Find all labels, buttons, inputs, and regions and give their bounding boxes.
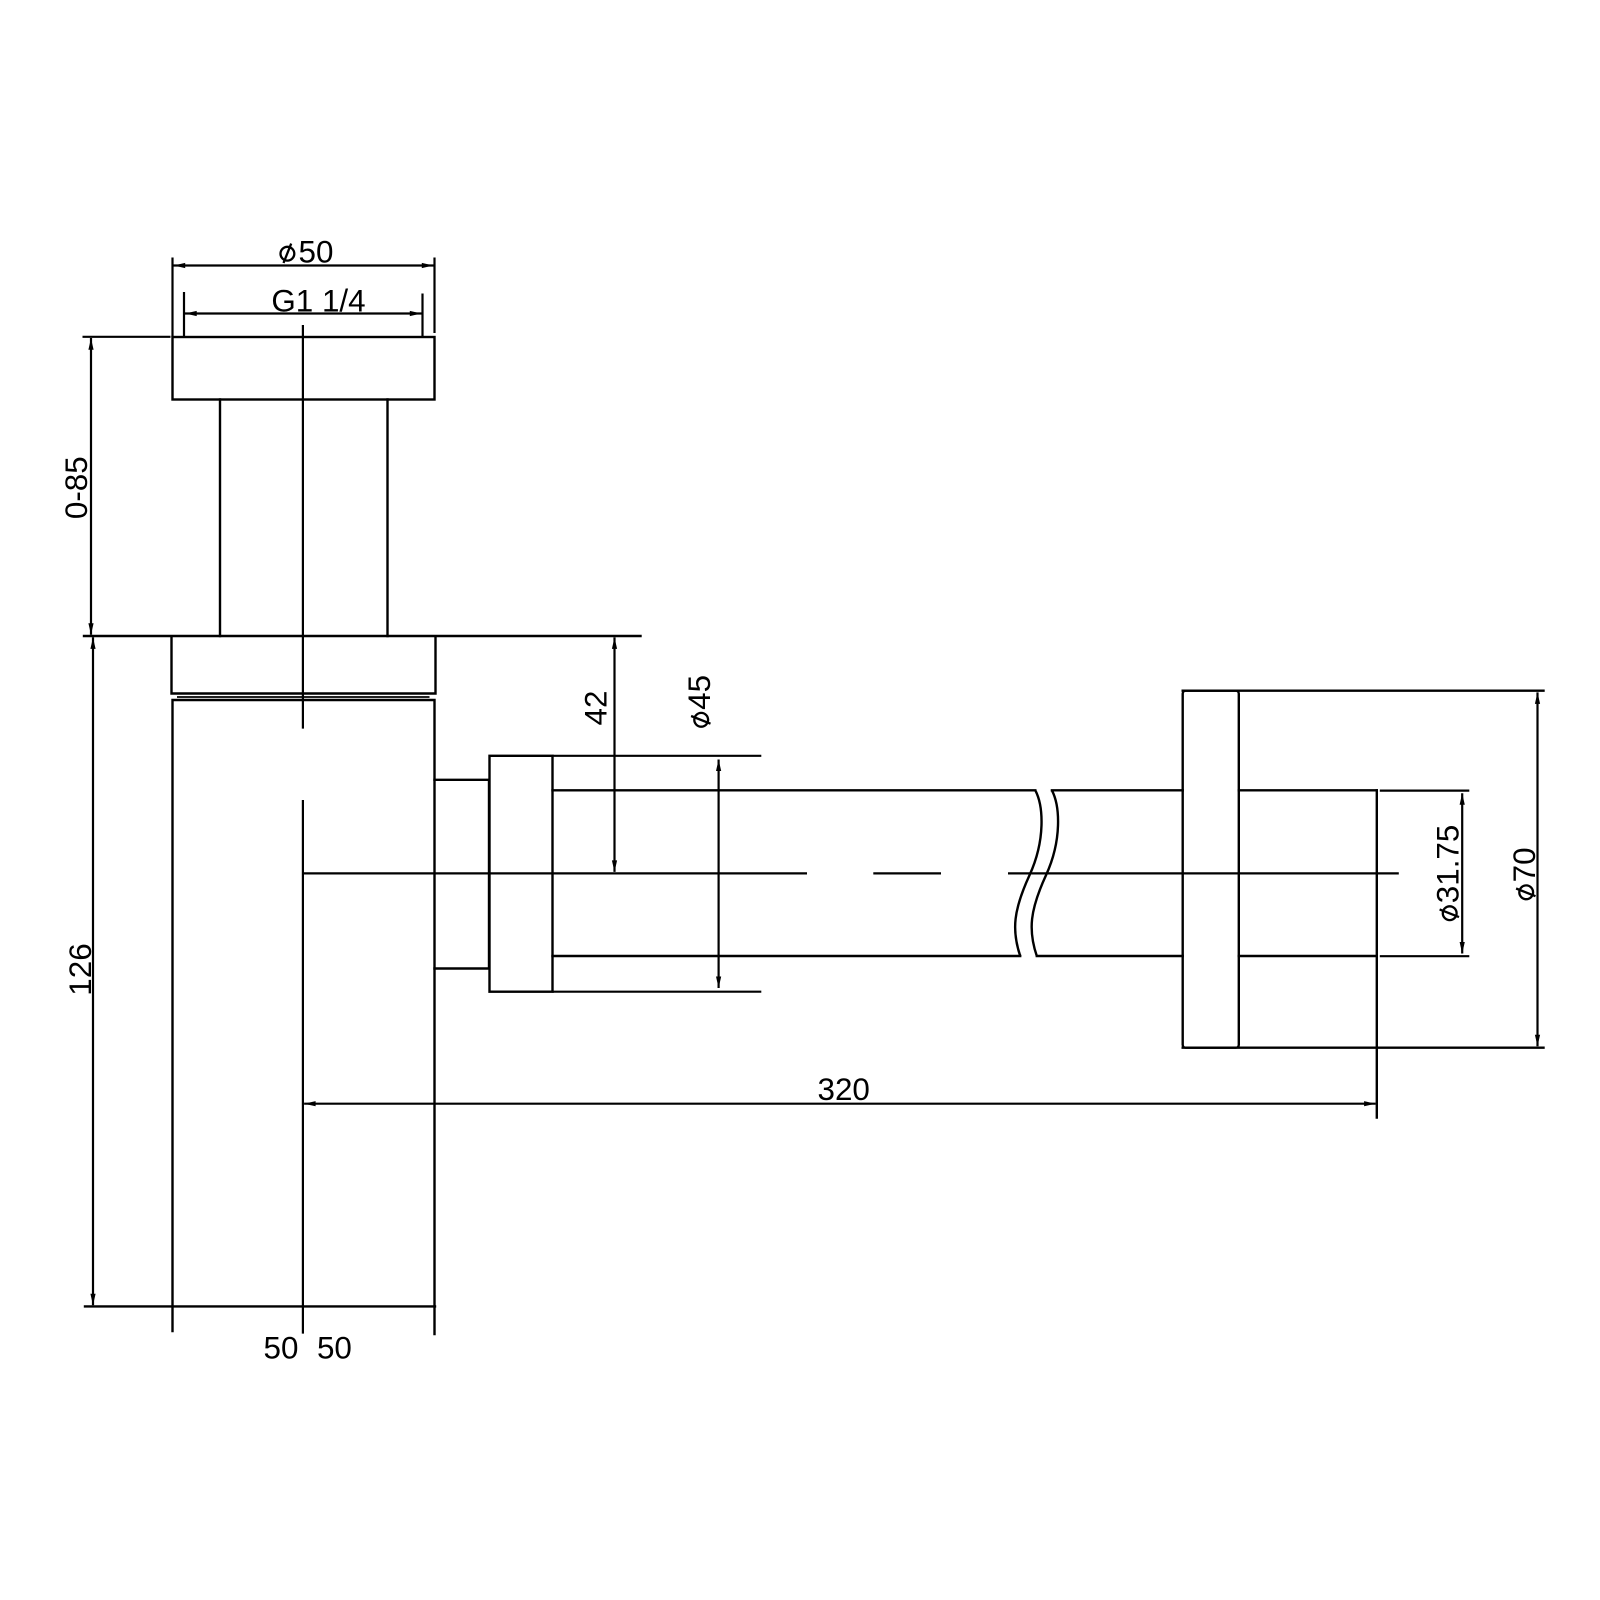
- svg-text:45: 45: [682, 675, 717, 710]
- svg-text:G1 1/4: G1 1/4: [271, 284, 365, 319]
- svg-text:50: 50: [299, 234, 334, 269]
- svg-text:50: 50: [317, 1331, 352, 1366]
- svg-text:50: 50: [264, 1331, 299, 1366]
- svg-text:126: 126: [63, 943, 98, 995]
- svg-text:70: 70: [1507, 847, 1542, 882]
- svg-text:31.75: 31.75: [1431, 825, 1466, 904]
- svg-text:0-85: 0-85: [59, 456, 94, 519]
- svg-text:42: 42: [579, 691, 614, 726]
- svg-text:320: 320: [818, 1072, 870, 1107]
